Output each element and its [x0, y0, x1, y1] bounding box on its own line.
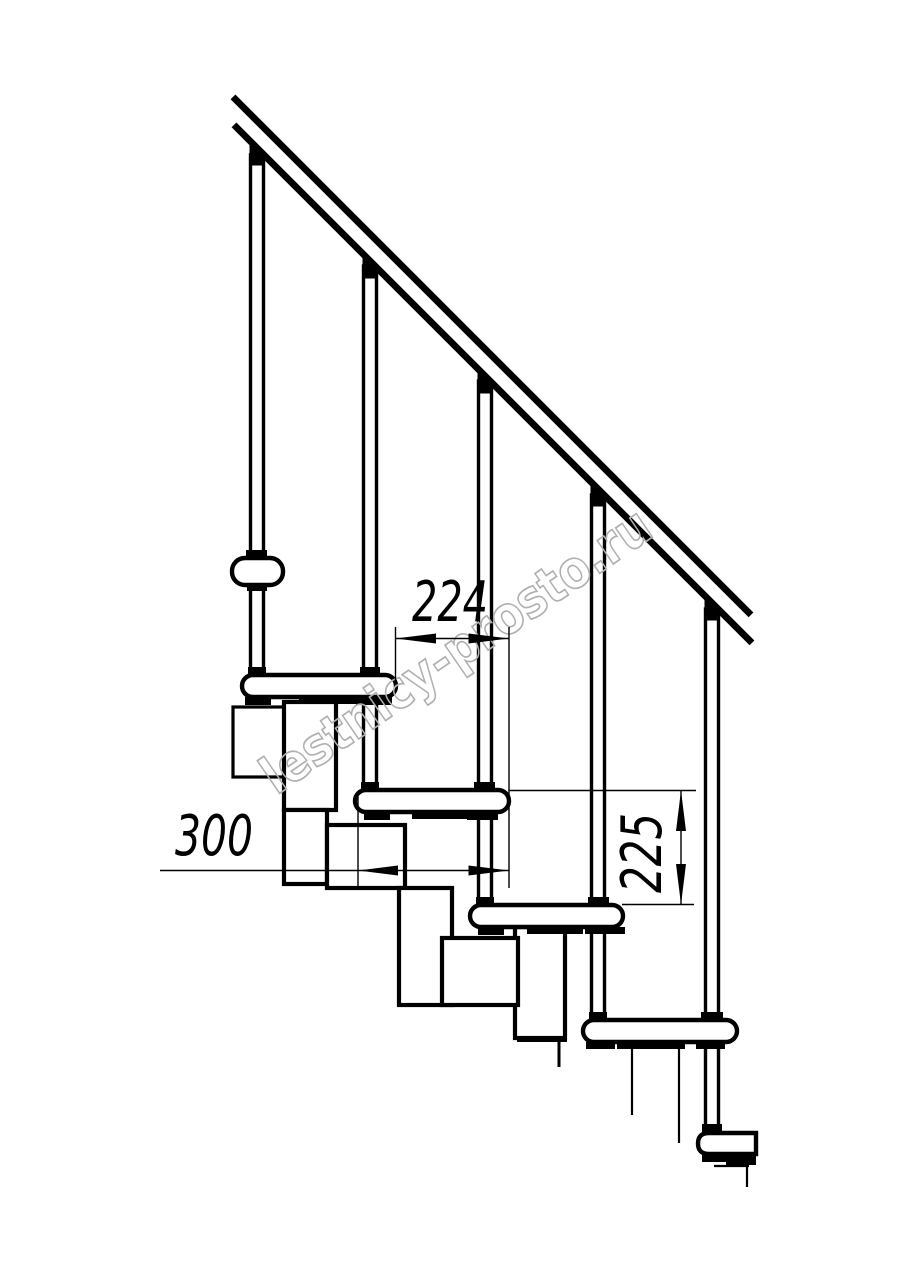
- tread-clamp-strip: [412, 813, 468, 819]
- upper-landing-tread-end-view: [232, 558, 283, 585]
- rod-cap: [248, 667, 266, 675]
- dimension-224-label: 224: [412, 570, 488, 635]
- dimension-300-label: 300: [175, 804, 253, 869]
- module-body-box-3: [442, 938, 518, 1005]
- arrowhead-down: [676, 864, 686, 905]
- rod-cap: [588, 897, 609, 905]
- drawing-svg: lestnicy-prosto.ru 224 300 225: [0, 0, 914, 1280]
- rod-cap: [246, 550, 267, 558]
- rod-nut: [245, 697, 271, 705]
- tread-2: [355, 790, 509, 812]
- tread-4: [583, 1020, 737, 1042]
- baluster-5-rod: [706, 609, 719, 1128]
- staircase-technical-drawing: lestnicy-prosto.ru 224 300 225: [0, 0, 914, 1280]
- arrowhead-up: [676, 791, 686, 832]
- tread-3: [470, 905, 623, 927]
- rod-nut: [364, 812, 390, 820]
- rod-cap: [476, 897, 494, 905]
- rod-cap: [589, 1012, 607, 1020]
- rod-cap: [361, 782, 379, 790]
- rod-clamp: [585, 927, 625, 934]
- rod-nut: [586, 1042, 615, 1049]
- module-column-1-lower: [284, 810, 327, 884]
- rod-clamp: [726, 1156, 756, 1165]
- tread-5-cut: [698, 1133, 756, 1154]
- tread-clamp-strip: [617, 1043, 685, 1049]
- module-body-box-2: [327, 825, 405, 888]
- rod-nut: [247, 585, 267, 591]
- baluster-1-rod: [251, 155, 264, 671]
- tread-clamp-strip: [527, 928, 583, 934]
- dimension-225-label: 225: [610, 813, 675, 893]
- dimension-225-label-group: 225: [610, 813, 675, 893]
- rod-cap: [701, 1012, 723, 1020]
- rod-cap: [702, 1124, 722, 1132]
- rod-nut: [478, 927, 504, 935]
- rod-cap: [474, 782, 495, 790]
- rod-clamp: [467, 812, 498, 820]
- rod-clamp: [696, 1042, 725, 1049]
- module-column-3: [515, 927, 565, 1038]
